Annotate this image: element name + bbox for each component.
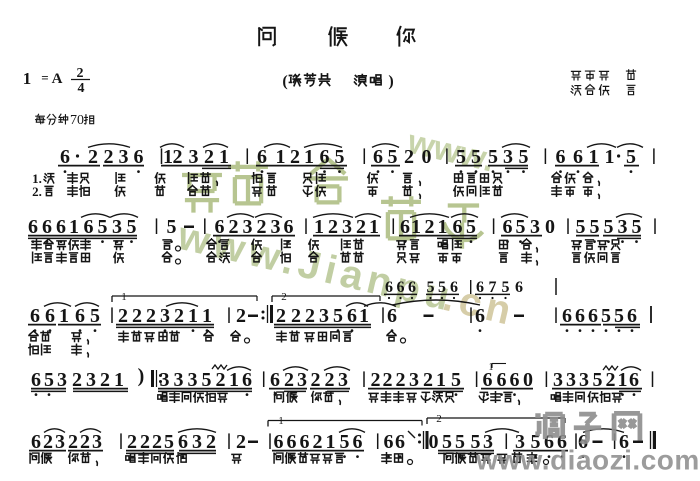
svg-text:1: 1	[188, 305, 198, 327]
svg-text:1: 1	[163, 146, 173, 168]
svg-text:1: 1	[59, 305, 69, 327]
svg-text:6: 6	[400, 216, 410, 238]
svg-text:6: 6	[408, 279, 416, 296]
svg-text:5: 5	[471, 146, 481, 168]
svg-text:6: 6	[31, 369, 41, 391]
svg-text:1: 1	[438, 216, 448, 238]
svg-text:6: 6	[28, 216, 38, 238]
svg-text:2: 2	[204, 146, 214, 168]
svg-text:70: 70	[70, 113, 84, 128]
svg-text:0: 0	[429, 431, 439, 453]
svg-text:6: 6	[287, 431, 297, 453]
svg-text:2: 2	[606, 369, 616, 391]
svg-text:): )	[138, 365, 145, 387]
svg-text:2: 2	[140, 431, 150, 453]
svg-text:6: 6	[497, 369, 507, 391]
svg-text:2: 2	[43, 431, 53, 453]
svg-text:2: 2	[152, 431, 162, 453]
svg-text:6: 6	[385, 279, 393, 296]
svg-text:2: 2	[383, 369, 393, 391]
svg-text:6: 6	[556, 146, 566, 168]
svg-text:6: 6	[629, 369, 639, 391]
svg-text:1: 1	[436, 369, 446, 391]
svg-text:3: 3	[342, 216, 352, 238]
svg-text:2: 2	[146, 305, 156, 327]
svg-text:5: 5	[98, 216, 108, 238]
svg-text:2: 2	[311, 369, 321, 391]
svg-text:6: 6	[42, 216, 52, 238]
svg-text:5: 5	[626, 146, 636, 168]
svg-text:1: 1	[121, 291, 127, 303]
svg-text:3: 3	[553, 369, 563, 391]
svg-text:3: 3	[160, 305, 170, 327]
svg-text:5: 5	[164, 431, 174, 453]
svg-text:5: 5	[516, 216, 526, 238]
svg-text:6: 6	[75, 305, 85, 327]
svg-text:3: 3	[243, 216, 253, 238]
svg-text:6: 6	[300, 431, 310, 453]
svg-text:6: 6	[274, 431, 284, 453]
svg-text:3: 3	[55, 431, 65, 453]
svg-text:3: 3	[319, 305, 329, 327]
svg-text:6: 6	[575, 305, 585, 327]
svg-text:1: 1	[411, 216, 421, 238]
svg-text:2: 2	[236, 431, 246, 453]
svg-text:6: 6	[134, 146, 144, 168]
svg-text:2: 2	[313, 431, 323, 453]
svg-text:4: 4	[78, 81, 85, 96]
svg-text:5: 5	[438, 279, 446, 296]
svg-text:2: 2	[290, 146, 300, 168]
svg-text:1: 1	[326, 431, 336, 453]
svg-text:2: 2	[281, 291, 287, 303]
svg-text:6: 6	[270, 369, 280, 391]
svg-text:5: 5	[604, 216, 614, 238]
svg-text:5: 5	[167, 216, 177, 238]
svg-text:2: 2	[423, 369, 433, 391]
svg-text:1: 1	[219, 146, 229, 168]
svg-text:=: =	[41, 70, 48, 85]
svg-text:6: 6	[515, 279, 523, 296]
svg-text:2: 2	[80, 431, 90, 453]
svg-text:5: 5	[519, 146, 529, 168]
svg-text:3: 3	[409, 369, 419, 391]
svg-text:3: 3	[566, 369, 576, 391]
svg-text:2: 2	[284, 369, 294, 391]
svg-text:2: 2	[236, 305, 246, 327]
svg-text:2: 2	[132, 305, 142, 327]
svg-text:6: 6	[395, 431, 405, 453]
svg-text:3: 3	[92, 431, 102, 453]
svg-text:2: 2	[257, 216, 267, 238]
svg-text:5: 5	[502, 279, 510, 296]
svg-text:2: 2	[118, 305, 128, 327]
svg-text:6: 6	[347, 305, 357, 327]
svg-text:5: 5	[614, 305, 624, 327]
svg-text:5: 5	[488, 146, 498, 168]
svg-text:2: 2	[276, 305, 286, 327]
svg-text:6: 6	[56, 216, 66, 238]
svg-text:6: 6	[573, 146, 583, 168]
svg-text:5: 5	[388, 146, 398, 168]
svg-text:2: 2	[88, 146, 98, 168]
svg-text:7: 7	[489, 279, 497, 296]
svg-text:3: 3	[618, 216, 628, 238]
svg-text:3: 3	[174, 369, 184, 391]
svg-text:0: 0	[523, 369, 533, 391]
svg-text:6: 6	[353, 431, 363, 453]
svg-text:(: (	[282, 73, 287, 90]
svg-text:5: 5	[576, 216, 586, 238]
svg-text:3: 3	[530, 216, 540, 238]
svg-text:6: 6	[397, 279, 405, 296]
svg-text:2: 2	[173, 146, 183, 168]
svg-text:2: 2	[68, 431, 78, 453]
svg-text:1: 1	[314, 216, 324, 238]
svg-text:6: 6	[31, 431, 41, 453]
svg-text:5: 5	[593, 369, 603, 391]
svg-text:5: 5	[632, 216, 642, 238]
svg-text:5: 5	[455, 431, 465, 453]
svg-text:2: 2	[206, 431, 216, 453]
svg-text:A: A	[52, 71, 63, 87]
svg-text:2: 2	[356, 216, 366, 238]
svg-text:1: 1	[589, 146, 599, 168]
svg-text:3: 3	[271, 216, 281, 238]
svg-text:2: 2	[371, 369, 381, 391]
svg-text:2.: 2.	[32, 184, 42, 199]
svg-text:2: 2	[328, 216, 338, 238]
svg-text:6: 6	[384, 431, 394, 453]
svg-text:1: 1	[114, 369, 124, 391]
svg-text:6: 6	[475, 305, 485, 327]
svg-text:6: 6	[45, 305, 55, 327]
svg-text:6: 6	[588, 305, 598, 327]
svg-text:5: 5	[44, 369, 54, 391]
svg-text:3: 3	[112, 216, 122, 238]
svg-text:2: 2	[127, 431, 137, 453]
svg-text:5: 5	[601, 305, 611, 327]
svg-text:0: 0	[422, 146, 432, 168]
svg-text:1: 1	[304, 146, 314, 168]
svg-text:3: 3	[189, 146, 199, 168]
svg-text:2: 2	[72, 369, 82, 391]
svg-text:6: 6	[510, 369, 520, 391]
svg-text:1: 1	[229, 369, 239, 391]
svg-text:6: 6	[84, 216, 94, 238]
svg-text:6: 6	[178, 431, 188, 453]
svg-text:6: 6	[627, 305, 637, 327]
svg-text:5: 5	[340, 431, 350, 453]
svg-text:2: 2	[174, 305, 184, 327]
svg-text:6: 6	[476, 279, 484, 296]
svg-text:2: 2	[100, 369, 110, 391]
svg-text:2: 2	[396, 369, 406, 391]
svg-text:5: 5	[333, 305, 343, 327]
svg-text:3: 3	[192, 431, 202, 453]
svg-text:1: 1	[23, 69, 32, 88]
svg-text:1: 1	[369, 216, 379, 238]
svg-text:www.diaozi.com: www.diaozi.com	[475, 445, 700, 476]
svg-text:3: 3	[338, 369, 348, 391]
svg-text:2: 2	[216, 369, 226, 391]
svg-text:2: 2	[436, 413, 442, 425]
svg-text:6: 6	[30, 305, 40, 327]
svg-text:2: 2	[305, 305, 315, 327]
svg-text:0: 0	[545, 216, 555, 238]
svg-text:6: 6	[562, 305, 572, 327]
svg-text:5: 5	[456, 146, 466, 168]
svg-text:3: 3	[297, 369, 307, 391]
svg-text:6: 6	[242, 369, 252, 391]
svg-text:3: 3	[579, 369, 589, 391]
svg-text:5: 5	[427, 279, 435, 296]
svg-text:6: 6	[320, 146, 330, 168]
svg-text:1: 1	[278, 415, 284, 427]
svg-text:1: 1	[69, 216, 79, 238]
svg-text:5: 5	[127, 216, 137, 238]
svg-text:3: 3	[160, 369, 170, 391]
svg-text:2: 2	[291, 305, 301, 327]
svg-text:5: 5	[466, 216, 476, 238]
svg-text:3: 3	[119, 146, 129, 168]
svg-text:3: 3	[503, 146, 513, 168]
svg-text:6: 6	[373, 146, 383, 168]
svg-text:2: 2	[425, 216, 435, 238]
svg-text:3: 3	[86, 369, 96, 391]
svg-text:1: 1	[605, 146, 615, 168]
svg-text:2: 2	[104, 146, 114, 168]
svg-text:6: 6	[503, 216, 513, 238]
svg-text:5: 5	[442, 431, 452, 453]
svg-text:2: 2	[325, 369, 335, 391]
svg-text:2: 2	[77, 66, 84, 81]
svg-text:5: 5	[590, 216, 600, 238]
svg-text:5: 5	[335, 146, 345, 168]
svg-text:3: 3	[188, 369, 198, 391]
svg-text:5: 5	[90, 305, 100, 327]
svg-text:6: 6	[387, 305, 397, 327]
svg-text:2: 2	[404, 146, 414, 168]
svg-text:6: 6	[60, 146, 70, 168]
svg-text:6: 6	[257, 146, 267, 168]
svg-text:6: 6	[215, 216, 225, 238]
svg-text:2: 2	[229, 216, 239, 238]
svg-text:5: 5	[202, 369, 212, 391]
svg-text:1: 1	[359, 305, 369, 327]
svg-text:): )	[388, 73, 393, 90]
svg-text:6: 6	[453, 216, 463, 238]
svg-text:1: 1	[202, 305, 212, 327]
svg-text:6: 6	[450, 279, 458, 296]
svg-text:1: 1	[618, 369, 628, 391]
svg-text:6: 6	[284, 216, 294, 238]
svg-text:5: 5	[451, 369, 461, 391]
svg-text:1: 1	[276, 146, 286, 168]
svg-text:3: 3	[57, 369, 67, 391]
